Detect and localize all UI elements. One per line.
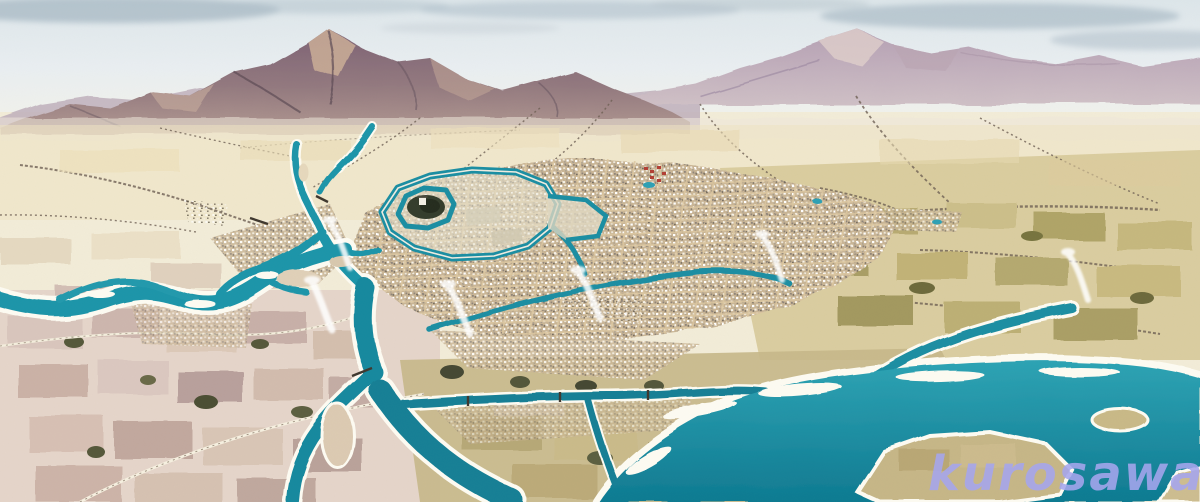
painting: kurosawa <box>0 0 1200 502</box>
watermark-text: kurosawa <box>928 446 1200 502</box>
paper-grain <box>0 0 1200 502</box>
painting-canvas: kurosawa <box>0 0 1200 502</box>
